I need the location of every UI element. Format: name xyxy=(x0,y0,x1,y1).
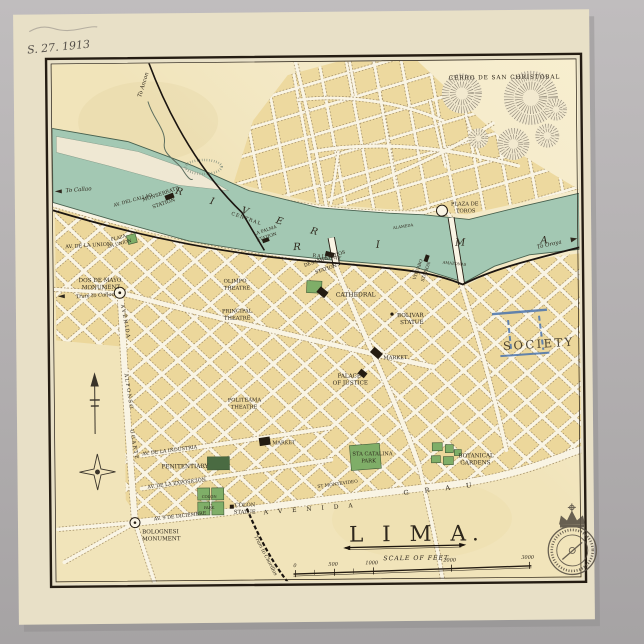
market-central-label: MARKET xyxy=(383,355,408,361)
scale-tick-3000: 3000 xyxy=(521,555,535,561)
dos-de-mayo-label2: MONUMENT xyxy=(82,285,121,291)
botanical-label: BOTANICAL xyxy=(458,453,494,459)
palace-label: PALACE xyxy=(338,373,361,379)
plaza-de-toros-ring xyxy=(436,205,447,216)
palace-label2: OF JUSTICE xyxy=(333,380,368,386)
colon-statue-label2: STATUE xyxy=(234,509,256,515)
penitentiary-block xyxy=(207,457,229,470)
politeama-label2: THEATRE xyxy=(231,404,258,410)
colon-statue-mark xyxy=(230,505,234,509)
bolivar-statue-mark xyxy=(390,313,393,316)
map-title: L I M A. xyxy=(349,521,485,547)
colon-park-label2: PARK xyxy=(204,505,215,510)
sta-catalina-label2: PARK xyxy=(361,458,376,464)
bolognesi-label2: MONUMENT xyxy=(142,536,181,542)
bolivar-label: BOLIVAR xyxy=(397,313,424,319)
plaza-toros-label2: TOROS xyxy=(456,208,476,214)
bolivar-label2: STATUE xyxy=(400,320,424,326)
plaza-toros-label: PLAZA DE xyxy=(451,201,479,207)
sta-catalina-label: STA CATALINA xyxy=(352,451,393,457)
market-south-block xyxy=(259,437,271,447)
penitentiary-label: PENITENTIARY xyxy=(161,464,208,470)
scale-caption: SCALE OF FEET xyxy=(383,555,449,563)
scale-tick-1000: 1000 xyxy=(365,560,379,566)
map-content: CERRO DE SAN CHRISTOBAL R I V E R R I M … xyxy=(0,0,644,644)
colon-statue-label: COLON xyxy=(235,502,256,508)
poster: S. 27. 1913 xyxy=(0,0,644,644)
olimpo-label: OLIMPO xyxy=(224,279,247,285)
olimpo-label2: THEATRE xyxy=(224,286,251,292)
hills-label: CERRO DE SAN CHRISTOBAL xyxy=(449,75,561,82)
dos-de-mayo-label: DOS DE MAYO xyxy=(79,278,122,284)
principal-label2: THEATRE xyxy=(224,316,251,322)
botanical-label2: GARDENS xyxy=(460,460,490,466)
scale-tick-2000: 2000 xyxy=(442,558,457,564)
bolognesi-label: BOLOGNESI xyxy=(142,529,179,535)
poster-mockup: S. 27. 1913 xyxy=(0,0,644,644)
politeama-label: POLITEAMA xyxy=(228,397,262,403)
market-south-label: MARKET xyxy=(272,440,296,446)
colon-park-label: COLON xyxy=(202,494,218,499)
scale-tick-500: 500 xyxy=(328,562,338,568)
cathedral-label: CATHEDRAL xyxy=(336,291,376,298)
principal-label: PRINCIPAL xyxy=(222,308,253,314)
